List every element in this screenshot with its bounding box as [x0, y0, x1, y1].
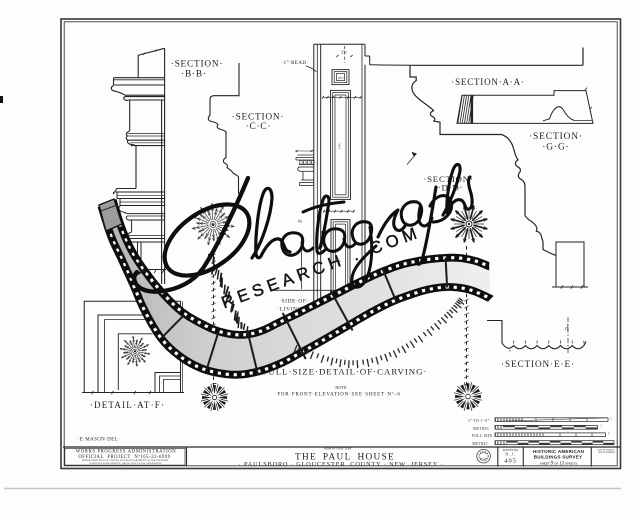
- svg-text:·C·C·: ·C·C·: [246, 122, 272, 132]
- svg-text:·NOTE·: ·NOTE·: [334, 385, 348, 390]
- svg-text:·FULL·SIZE·DETAIL·OF·CARVING·: ·FULL·SIZE·DETAIL·OF·CARVING·: [259, 367, 428, 377]
- svg-text:·SECTION·: ·SECTION·: [529, 132, 583, 142]
- svg-text:2½: 2½: [341, 50, 347, 55]
- svg-text:·SIDE·OF·: ·SIDE·OF·: [279, 299, 309, 305]
- svg-text:4¾: 4¾: [298, 220, 303, 224]
- svg-text:·E·MASON·DEL·: ·E·MASON·DEL·: [78, 438, 120, 443]
- svg-text:·METRIC·: ·METRIC·: [472, 427, 491, 431]
- svg-text:·DETAIL·AT·F·: ·DETAIL·AT·F·: [90, 400, 165, 410]
- svg-text:·METRIC·: ·METRIC·: [471, 442, 490, 446]
- svg-text:FOR·FRONT·ELEVATION·SEE·SHEET·: FOR·FRONT·ELEVATION·SEE·SHEET·Nº–6: [277, 391, 400, 397]
- svg-text:·SECTION·: ·SECTION·: [171, 60, 224, 70]
- svg-text:·SECTION·: ·SECTION·: [232, 113, 285, 123]
- svg-text:LIST OF SHEETS: LIST OF SHEETS: [597, 450, 615, 452]
- svg-text:N.J.: N.J.: [505, 451, 516, 456]
- svg-text:·1”·TO·1’-0”·: ·1”·TO·1’-0”·: [467, 419, 491, 423]
- svg-text:· PAULSBORO · GLOUCESTER COUN: · PAULSBORO · GLOUCESTER COUNTY · NEW JE…: [239, 461, 444, 468]
- svg-text:·SECTION·E·E·: ·SECTION·E·E·: [501, 359, 575, 369]
- svg-text:NAME OF STRUCTURE: NAME OF STRUCTURE: [324, 447, 352, 450]
- svg-text:1-6½: 1-6½: [338, 142, 342, 150]
- svg-text:·B·B·: ·B·B·: [181, 70, 207, 80]
- svg-text:405: 405: [504, 457, 517, 464]
- svg-text:·FULL·SIZE·: ·FULL·SIZE·: [471, 434, 494, 438]
- svg-text:BUILDINGS SURVEY: BUILDINGS SURVEY: [534, 454, 582, 459]
- svg-text:·G·G·: ·G·G·: [542, 143, 569, 153]
- svg-text:10½: 10½: [338, 76, 344, 80]
- svg-text:·SECTION·A·A·: ·SECTION·A·A·: [451, 77, 524, 87]
- svg-text:·1”·BEAD·: ·1”·BEAD·: [282, 61, 309, 66]
- svg-text:HOLD NUMBER: HOLD NUMBER: [598, 452, 615, 454]
- svg-text:HISTORIC AMERICAN: HISTORIC AMERICAN: [533, 449, 584, 454]
- svg-text:NATIONAL PARK SERVICE, BRANCH: NATIONAL PARK SERVICE, BRANCH OF PLANS A…: [89, 462, 161, 465]
- svg-text:C: C: [565, 326, 568, 331]
- svg-text:1’: 1’: [608, 433, 610, 436]
